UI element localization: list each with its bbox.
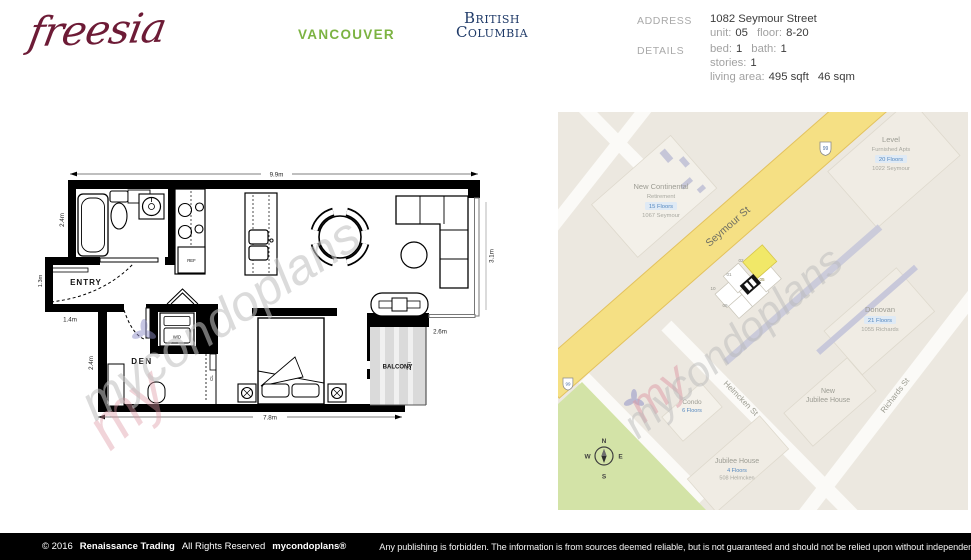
compass-w: W [584,454,591,461]
unit-09: 09 [722,303,728,308]
jubilee-floors: 4 Floors [727,468,747,474]
unit-02: 02 [738,258,744,263]
continental-address: 1067 Seymour [642,213,680,219]
freesia-logo: freesia [25,4,169,57]
floor-value: 8-20 [786,27,809,39]
nightstand [238,384,256,402]
details-bed-bath: bed:1bath:1 [710,43,796,55]
highway-shield-icon: 99 [563,378,573,390]
watermark-script: mycondoplans [70,207,370,432]
bedroom [238,318,346,404]
stories-value: 1 [750,57,756,69]
footer-rights: All Rights Reserved [182,541,265,552]
highway-shield-icon: 99 [820,142,831,156]
footer-copyright: © 2016 [42,541,73,552]
ref-label: REF [187,258,196,263]
toilet-tank [110,191,128,202]
continental-type: Retirement [647,194,676,200]
ottoman [401,242,427,268]
bath-value: 1 [780,43,786,55]
bed-value: 1 [736,43,742,55]
continental-name: New Continental [633,182,688,191]
city-label: VANCOUVER [298,27,395,42]
new-jubilee-line2: Jubilee House [806,397,850,404]
stories-label: stories: [710,57,746,69]
area-label: living area: [710,71,765,83]
donovan-floors: 21 Floors [868,318,892,324]
address-label: ADDRESS [637,15,692,27]
level-address: 1022 Seymour [872,166,910,172]
level-floors: 20 Floors [879,157,903,163]
dim-bath-left: 2.4m [59,213,66,227]
unit-10: 10 [710,286,716,291]
entry-label: ENTRY [70,278,102,287]
footer-company: Renaissance Trading [80,541,175,552]
province-line2: Columbia [446,25,538,39]
continental-floors: 15 Floors [649,204,673,210]
dim-entry-bottom: 1.4m [63,317,77,324]
shield-number: 99 [565,381,571,386]
nightstand [328,384,346,402]
bath-label: bath: [751,43,776,55]
unit-01: 01 [726,272,732,277]
jubilee-address: 508 Helmcken [719,476,754,482]
sofa [396,196,468,288]
faucet [270,239,273,242]
address-unit-floor: unit:05floor:8-20 [710,27,818,39]
unit-05: 05 [759,277,765,282]
footer-notice: Any publishing is forbidden. The informa… [379,542,971,552]
unit-value: 05 [735,27,748,39]
level-name: Level [882,135,900,144]
donovan-address: 1055 Richards [861,327,898,333]
living-room [371,196,468,316]
unit-label: unit: [710,27,731,39]
compass-s: S [602,474,607,481]
shield-number: 99 [823,146,829,152]
dim-bottom: 7.8m [263,415,277,422]
plan-watermark: my mycondoplans [70,207,370,463]
donovan-labels: Donovan 21 Floors 1055 Richards [861,305,898,333]
compass-n: N [602,438,607,445]
details-label: DETAILS [637,45,684,57]
bed-label: bed: [710,43,732,55]
address-street: 1082 Seymour Street [710,13,817,25]
pillow [262,384,289,397]
tv-console [371,293,428,316]
hanger-icon [167,289,198,304]
province-label: British Columbia [446,11,538,39]
condo-plan-page: freesia VANCOUVER British Columbia ADDRE… [0,0,971,560]
area-sqft: 495 sqft [769,71,809,83]
dim-right: 3.1m [489,249,496,263]
donovan-name: Donovan [865,305,895,314]
jubilee-name: Jubilee House [715,458,759,465]
dim-top: 9.9m [270,171,284,178]
bathroom [78,190,164,256]
new-jubilee-line1: New [821,388,836,395]
footer-bar: © 2016Renaissance TradingAll Rights Rese… [0,533,971,560]
cl-label: CL [209,375,214,381]
details-area: living area:495 sqft46 sqm [710,71,864,83]
location-map: 02 01 10 09 05 99 99 N S W E [558,112,968,510]
footer-left: © 2016Renaissance TradingAll Rights Rese… [42,541,353,552]
level-type: Furnished Apts [872,147,911,153]
balcony-label: BALCONY [383,365,413,371]
dim-entry-left: 1.3m [38,274,44,287]
pillow [292,384,319,397]
floor-label: floor: [757,27,782,39]
sink-basin [249,230,268,244]
area-sqm: 46 sqm [818,71,855,83]
dim-balcony-top: 2.6m [433,329,447,336]
floor-plan: 9.9m 7.8m 2.4m 1.3m 1.4m 2.4m 3.1m 2.6m … [40,150,500,450]
details-stories: stories:1 [710,57,766,69]
compass-e: E [618,454,623,461]
toilet-bowl [111,203,127,229]
footer-brand: mycondoplans® [272,541,346,552]
